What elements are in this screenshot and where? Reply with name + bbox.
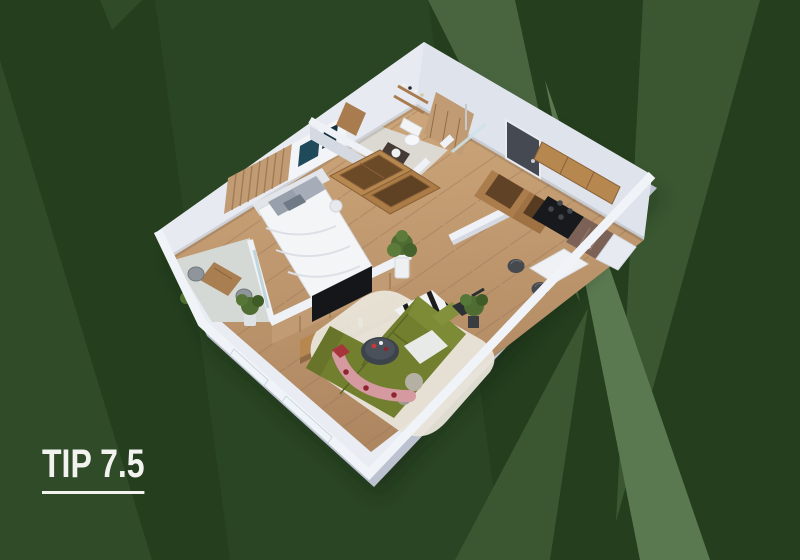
plant-pot bbox=[468, 316, 479, 328]
dining-chair bbox=[508, 259, 525, 273]
sink bbox=[392, 149, 401, 158]
white-pot bbox=[395, 258, 409, 278]
plan-title: TIP 7.5 bbox=[42, 444, 145, 494]
round-pillow bbox=[405, 373, 423, 391]
plant-pot bbox=[244, 314, 256, 326]
bedside-stool bbox=[330, 200, 342, 212]
balcony-chair bbox=[188, 267, 204, 281]
promo-page: TIP 7.5 bbox=[0, 0, 800, 560]
toilet bbox=[405, 135, 420, 146]
coffee-table bbox=[361, 337, 399, 365]
